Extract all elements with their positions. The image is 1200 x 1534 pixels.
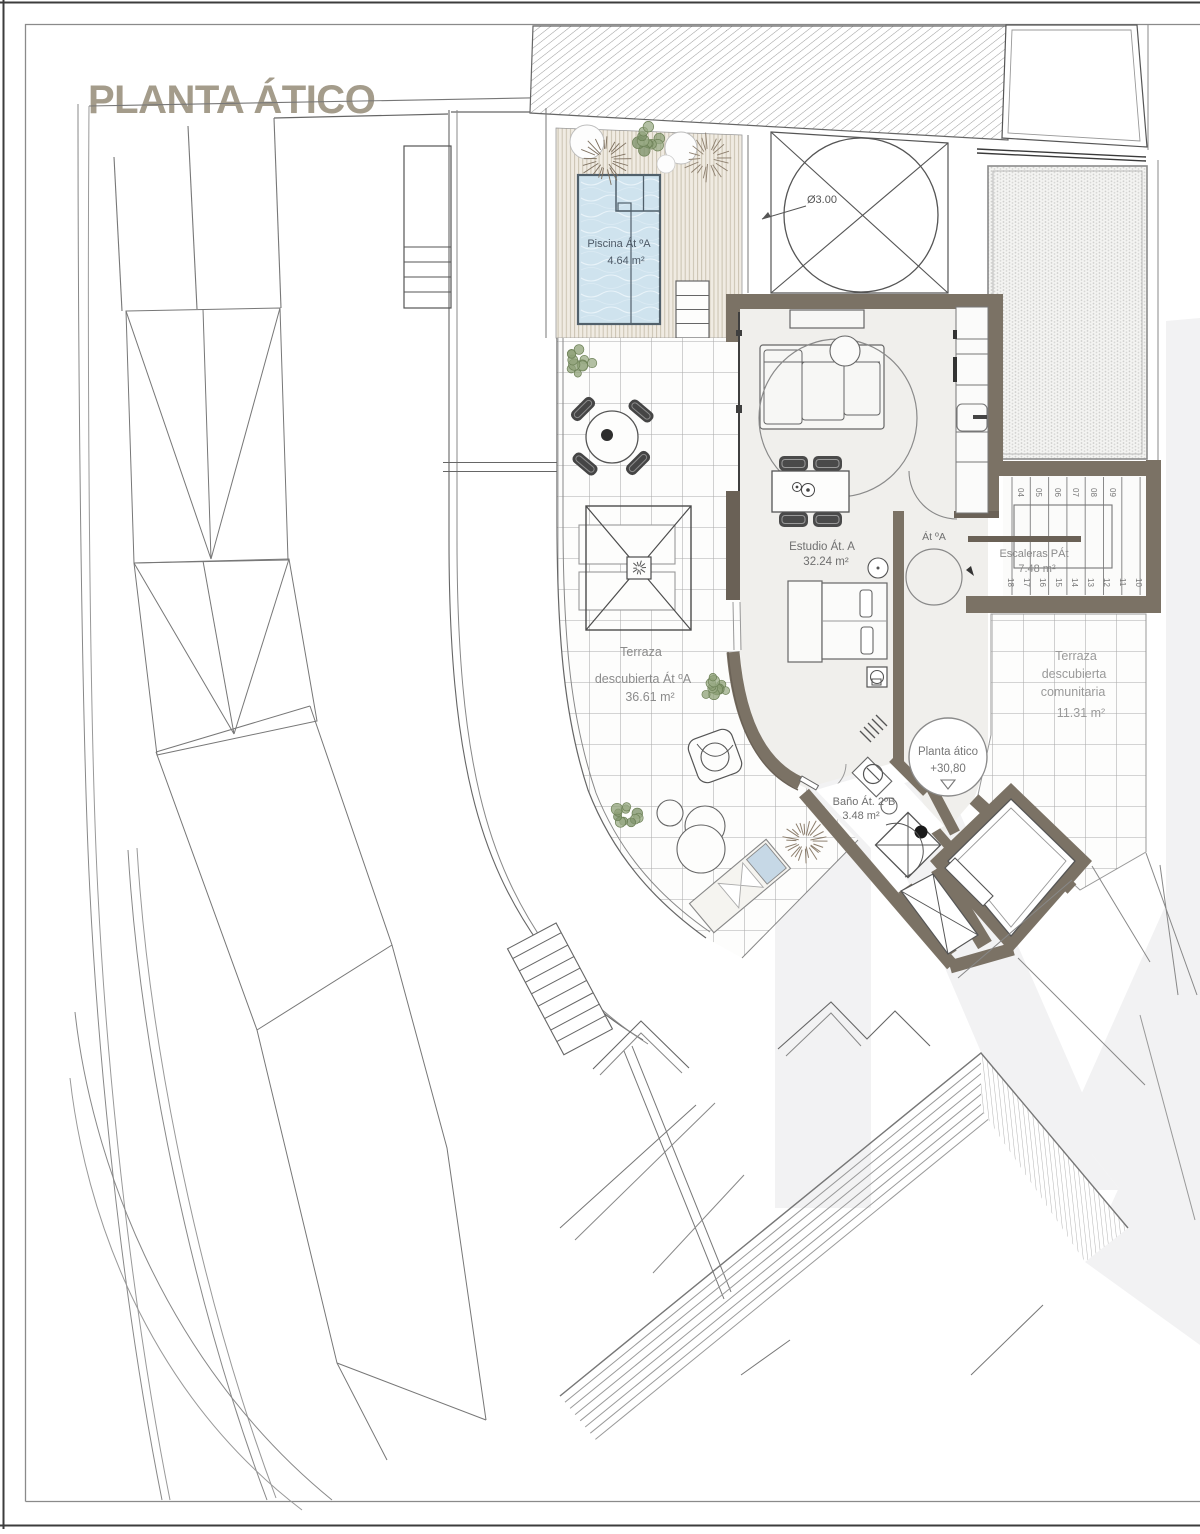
svg-text:7.48 m²: 7.48 m² [1018, 563, 1056, 575]
svg-text:07: 07 [1071, 488, 1080, 497]
svg-text:17: 17 [1022, 578, 1031, 587]
svg-text:13: 13 [1086, 578, 1095, 587]
svg-text:18: 18 [1006, 578, 1015, 587]
svg-text:3.48 m²: 3.48 m² [842, 810, 880, 822]
svg-text:11.31 m²: 11.31 m² [1057, 706, 1105, 720]
svg-text:06: 06 [1053, 488, 1062, 497]
svg-text:16: 16 [1038, 578, 1047, 587]
svg-text:Baño Át. 2ºB: Baño Át. 2ºB [833, 795, 896, 808]
svg-text:PLANTA ÁTICO: PLANTA ÁTICO [88, 77, 375, 122]
svg-text:Terraza: Terraza [620, 645, 662, 659]
svg-text:4.64 m²: 4.64 m² [607, 255, 645, 267]
svg-text:05: 05 [1034, 488, 1043, 497]
svg-text:Escaleras PÁt: Escaleras PÁt [999, 547, 1068, 560]
svg-text:Át ºA: Át ºA [922, 530, 946, 543]
svg-text:comunitaria: comunitaria [1041, 685, 1106, 699]
svg-text:09: 09 [1108, 488, 1117, 497]
svg-text:04: 04 [1016, 488, 1025, 497]
svg-text:14: 14 [1070, 578, 1079, 587]
svg-text:+30,80: +30,80 [930, 763, 966, 775]
svg-text:32.24 m²: 32.24 m² [803, 556, 849, 568]
svg-text:08: 08 [1089, 488, 1098, 497]
svg-text:Ø3.00: Ø3.00 [807, 194, 837, 206]
svg-text:12: 12 [1102, 578, 1111, 587]
svg-text:36.61 m²: 36.61 m² [625, 690, 674, 704]
svg-text:10: 10 [1134, 578, 1143, 587]
svg-text:Piscina Át ºA: Piscina Át ºA [587, 237, 651, 250]
svg-text:descubierta Át ºA: descubierta Át ºA [595, 671, 692, 686]
svg-text:11: 11 [1118, 578, 1127, 587]
svg-text:descubierta: descubierta [1042, 667, 1107, 681]
svg-text:Planta ático: Planta ático [918, 746, 978, 758]
svg-text:Estudio Át. A: Estudio Át. A [789, 540, 855, 553]
svg-text:15: 15 [1054, 578, 1063, 587]
svg-text:Terraza: Terraza [1055, 649, 1097, 663]
